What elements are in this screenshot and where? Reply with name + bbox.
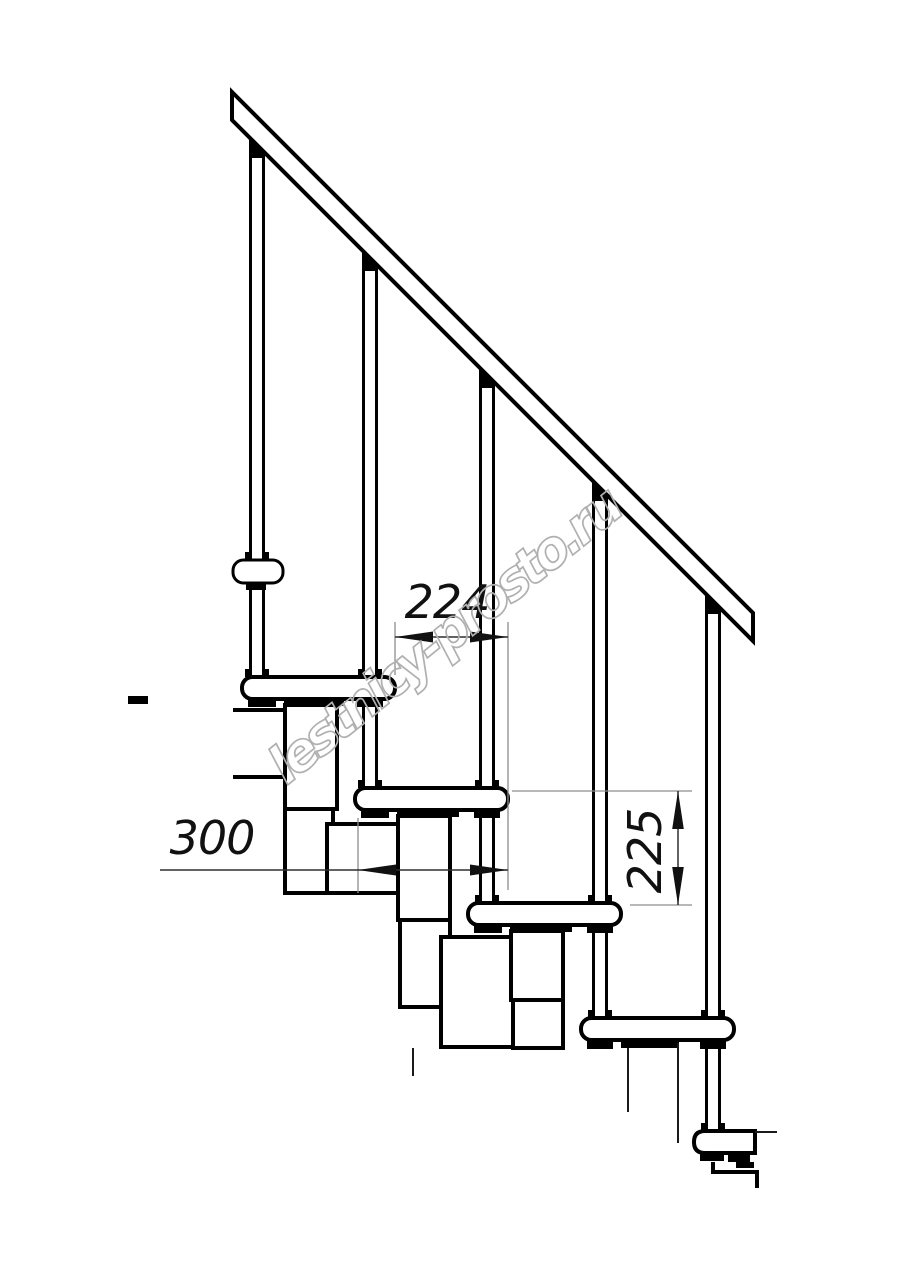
tread — [355, 788, 508, 810]
watermark-text: lestnicy-prosto.ru — [257, 475, 634, 796]
tread — [581, 1018, 734, 1040]
baluster — [481, 383, 494, 907]
tread-partial — [694, 1131, 755, 1153]
module-block — [327, 824, 404, 893]
tread-fitting — [246, 583, 266, 590]
dimension-depth-label: 300 — [170, 811, 255, 865]
baluster — [251, 153, 264, 681]
upper-tread-end-view — [233, 560, 283, 583]
staircase-technical-drawing: 224 300 225 lestnicy-prosto.ru — [0, 0, 914, 1280]
bottom-step-outline — [713, 1162, 757, 1188]
floor-edge-mark — [128, 696, 148, 704]
module-block — [398, 816, 450, 920]
baluster — [707, 609, 720, 1135]
dimension-rise-label: 225 — [618, 809, 672, 894]
staircase-drawing-page: 224 300 225 lestnicy-prosto.ru — [0, 0, 914, 1280]
baluster — [594, 496, 607, 1022]
tread — [468, 903, 621, 925]
module-block — [511, 931, 563, 1000]
module-block — [441, 937, 517, 1047]
module-block — [513, 1000, 563, 1048]
